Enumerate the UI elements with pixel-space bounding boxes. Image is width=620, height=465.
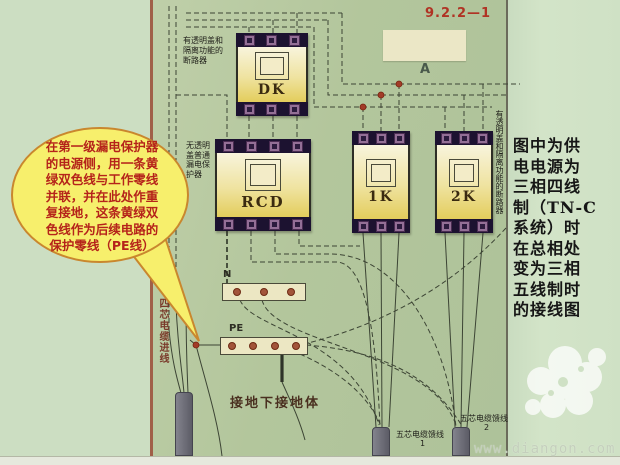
rcd-description: 无透明盖普通漏电保护器 [186, 141, 212, 179]
terminal [266, 104, 277, 115]
terminal [394, 133, 405, 144]
n-bus-label: N [223, 269, 231, 280]
junction-dot [378, 92, 384, 98]
right-breaker-description: 有透明盖和隔离功能的断路器 [494, 110, 504, 240]
terminal [269, 141, 280, 152]
figure-number: 9.2.2—1 [425, 6, 491, 21]
junction-dot [193, 342, 199, 348]
rcd-top-terminals [215, 139, 311, 153]
terminal [477, 133, 488, 144]
flower-watermark-icon [505, 325, 620, 440]
incoming-cable [175, 392, 193, 456]
dk-description: 有透明盖和 隔离功能的 断路器 [183, 36, 231, 66]
device-1k-breaker: 1K [352, 131, 410, 233]
bus-terminal-dot [292, 342, 300, 350]
device-dk-breaker: DK [236, 33, 308, 116]
bus-terminal-dot [260, 288, 268, 296]
bus-terminal-dot [249, 342, 257, 350]
terminal [289, 104, 300, 115]
1k-label: 1K [368, 189, 394, 205]
breaker-symbol-icon [255, 52, 289, 80]
feeder-cable-1 [372, 427, 390, 456]
site-watermark: www.diangon.com [474, 441, 620, 457]
2k-label: 2K [451, 189, 477, 205]
1k-body: 1K [352, 145, 410, 219]
rcd-label: RCD [241, 193, 284, 211]
terminal [459, 133, 470, 144]
breaker-symbol-icon [366, 159, 396, 187]
bus-terminal-dot [233, 288, 241, 296]
speech-bubble-text: 在第一级漏电保护器 的电源侧，用一条黄 绿双色线与工作零线 并联，并在此处作重 … [24, 139, 180, 255]
n-bus-bar [222, 283, 306, 301]
bus-terminal-dot [271, 342, 279, 350]
2k-body: 2K [435, 145, 493, 219]
terminal [394, 221, 405, 232]
pe-bus-label: PE [229, 323, 243, 334]
dk-bottom-terminals [236, 102, 308, 116]
terminal [246, 141, 257, 152]
feeder-cable-2 [452, 427, 470, 456]
sidebar-caption: 图中为供 电电源为 三相四线 制（TN-C 系统）时 在总相处 变为三相 五线制… [513, 136, 615, 321]
annotation-a: A [417, 62, 433, 77]
terminal [289, 35, 300, 46]
2k-bottom-terminals [435, 219, 493, 233]
ground-note: 接地下接地体 [230, 392, 320, 411]
terminal [376, 221, 387, 232]
feeder1-number: 1 [420, 439, 425, 448]
rcd-bottom-terminals [215, 217, 311, 231]
terminal [459, 221, 470, 232]
dk-label: DK [258, 82, 286, 98]
junction-dot [360, 104, 366, 110]
terminal [358, 133, 369, 144]
terminal [441, 133, 452, 144]
terminal [223, 219, 234, 230]
device-rcd: RCD [215, 139, 311, 231]
dk-top-terminals [236, 33, 308, 47]
feeder2-number: 2 [484, 423, 489, 432]
bus-terminal-dot [287, 288, 295, 296]
rcd-body: RCD [215, 153, 311, 217]
terminal [246, 219, 257, 230]
terminal [269, 219, 280, 230]
device-2k-breaker: 2K [435, 131, 493, 233]
1k-top-terminals [352, 131, 410, 145]
terminal [358, 221, 369, 232]
terminal [477, 221, 488, 232]
2k-top-terminals [435, 131, 493, 145]
terminal [441, 221, 452, 232]
dk-body: DK [236, 47, 308, 102]
breaker-symbol-icon [449, 159, 479, 187]
incoming-cable-label: 四芯电缆进线 [155, 298, 170, 408]
1k-bottom-terminals [352, 219, 410, 233]
terminal [292, 141, 303, 152]
junction-dot [396, 81, 402, 87]
handwriting-box [383, 30, 466, 61]
terminal [376, 133, 387, 144]
terminal [244, 104, 255, 115]
terminal [223, 141, 234, 152]
terminal [266, 35, 277, 46]
terminal [244, 35, 255, 46]
bus-terminal-dot [228, 342, 236, 350]
rcd-symbol-icon [245, 159, 281, 191]
terminal [292, 219, 303, 230]
pe-bus-bar [220, 337, 308, 355]
